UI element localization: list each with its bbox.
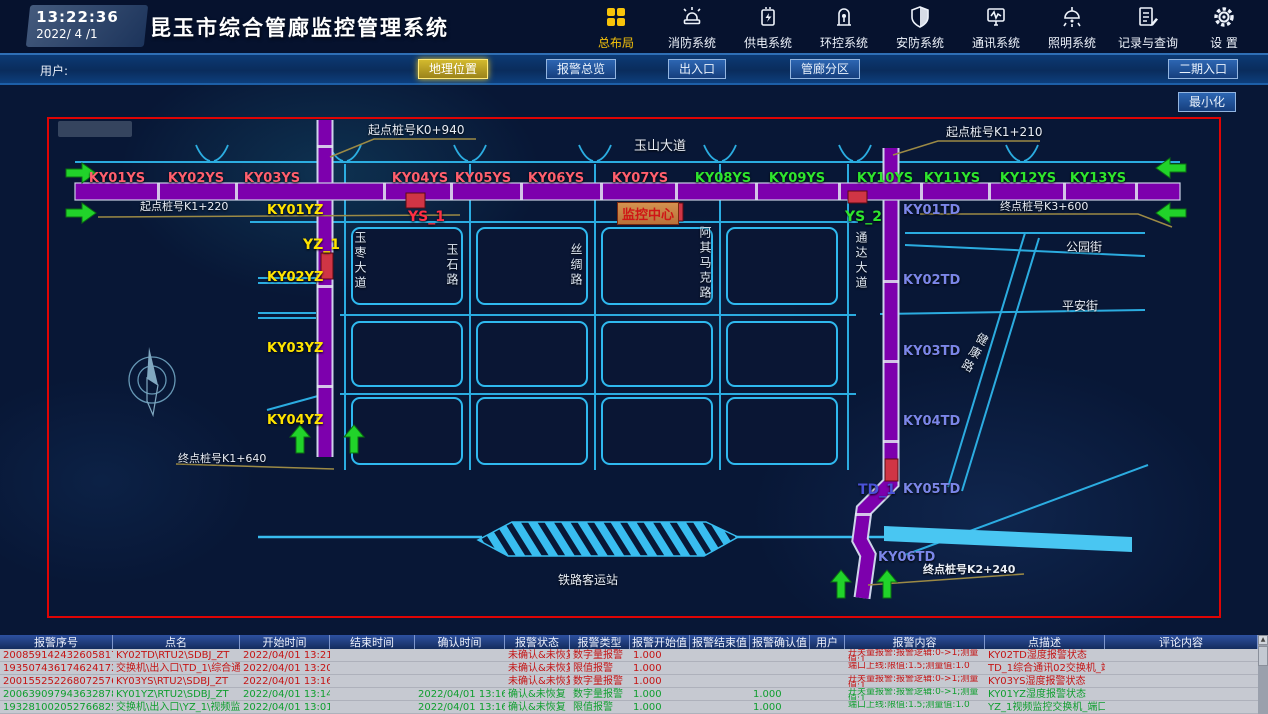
station-label-ky08ys[interactable]: KY08YS [695, 171, 751, 186]
nav-item-3[interactable]: 供电系统 [730, 3, 806, 51]
column-header-user: 用户 [810, 635, 845, 649]
cell-seq: 2006390979436328781 [0, 688, 113, 700]
cell-end_val [690, 649, 750, 661]
green-arrow-up [831, 570, 851, 598]
road-label-tongda: 通达大道 [853, 231, 870, 291]
cell-start_val: 1.000 [630, 649, 690, 661]
cell-content: 端口上线:限值:1.5;测量值:1.0 [845, 701, 985, 713]
cell-start: 2022/04/01 13:01:17 [240, 701, 330, 713]
station-label-ky03ys[interactable]: KY03YS [244, 171, 300, 186]
cell-user [810, 662, 845, 674]
station-label-ky06td[interactable]: KY06TD [878, 550, 935, 565]
cell-end_val [690, 688, 750, 700]
toolbar: 用户: 地理位置报警总览出入口管廊分区 二期入口 [0, 55, 1268, 85]
nav-item-1[interactable]: 总布局 [578, 3, 654, 51]
cell-end_val [690, 675, 750, 687]
cell-confirm_val: 1.000 [750, 701, 810, 713]
table-row[interactable]: 1935074361746241723交换机\出入口\TD_1\综合通讯02\X… [0, 662, 1268, 675]
lighting-lamp-icon [1040, 5, 1104, 33]
cell-confirm [415, 649, 505, 661]
station-label-ky02td[interactable]: KY02TD [903, 273, 960, 288]
nav-item-label: 设 置 [1192, 34, 1256, 51]
stake-label-end-k3-600: 终点桩号K3+600 [1000, 198, 1088, 214]
table-row[interactable]: 2008591424326058179KY02TD\RTU2\SDBJ_ZT20… [0, 649, 1268, 662]
cell-start: 2022/04/01 13:14:53 [240, 688, 330, 700]
time-text: 13:22:36 [36, 8, 138, 26]
cell-desc: YZ_1视频监控交换机_端口14 [985, 701, 1105, 713]
alarm-table-body: 2008591424326058179KY02TD\RTU2\SDBJ_ZT20… [0, 649, 1268, 714]
cell-confirm_val [750, 649, 810, 661]
cell-point: 交换机\出入口\YZ_1\视频监控\XK14 [113, 701, 240, 713]
security-shield-icon [888, 5, 952, 33]
cell-point: KY02TD\RTU2\SDBJ_ZT [113, 649, 240, 661]
station-label-ky01ys[interactable]: KY01YS [89, 171, 145, 186]
station-label-ky12ys[interactable]: KY12YS [1000, 171, 1056, 186]
main-nav: 总布局消防系统供电系统环控系统安防系统通讯系统照明系统记录与查询设 置 [578, 3, 1262, 53]
minimize-button[interactable]: 最小化 [1178, 92, 1236, 112]
nav-item-label: 照明系统 [1040, 34, 1104, 51]
nav-item-7[interactable]: 照明系统 [1034, 3, 1110, 51]
table-row[interactable]: 2001552522680725761KY03YS\RTU2\SDBJ_ZT20… [0, 675, 1268, 688]
green-arrow-up [290, 425, 310, 453]
compass-icon [129, 347, 175, 415]
green-arrow-right [66, 203, 96, 223]
station-label-ky02ys[interactable]: KY02YS [168, 171, 224, 186]
cell-confirm_val [750, 675, 810, 687]
stake-label-end-k2-240: 终点桩号K2+240 [923, 561, 1015, 577]
cell-content: 开关量报警:报警逻辑:0->1;测量值:1 [845, 675, 985, 687]
cell-desc: TD_1综合通讯02交换机_端口2 [985, 662, 1105, 674]
scroll-thumb[interactable] [1258, 646, 1268, 666]
scroll-up-icon[interactable]: ▲ [1258, 635, 1268, 645]
cell-comment [1105, 701, 1258, 713]
stake-label-start-k1-220: 起点桩号K1+220 [140, 198, 228, 214]
cell-end [330, 701, 415, 713]
nav-item-9[interactable]: 设 置 [1186, 3, 1262, 51]
alarm-point-label-td_1[interactable]: TD_1 [858, 482, 896, 498]
map-canvas [0, 85, 1268, 635]
cell-comment [1105, 675, 1258, 687]
nav-item-label: 安防系统 [888, 34, 952, 51]
alarm-box-ys2[interactable] [848, 191, 867, 203]
cell-start_val: 1.000 [630, 662, 690, 674]
station-label-ky13ys[interactable]: KY13YS [1070, 171, 1126, 186]
station-label-ky05td[interactable]: KY05TD [903, 482, 960, 497]
road-label-yuzao: 玉枣大道 [352, 231, 369, 291]
column-header-start: 开始时间 [240, 635, 330, 649]
cell-desc: KY03YS湿度报警状态 [985, 675, 1105, 687]
toolbar-button-3[interactable]: 出入口 [668, 59, 726, 79]
cell-content: 开关量报警:报警逻辑:0->1;测量值:1 [845, 649, 985, 661]
alarm-box-ys1[interactable] [406, 193, 425, 208]
cell-type: 数字量报警 [570, 688, 630, 700]
station-label-ky03td[interactable]: KY03TD [903, 344, 960, 359]
date-text: 2022/ 4 /1 [36, 27, 138, 41]
cell-start: 2022/04/01 13:21:55 [240, 649, 330, 661]
green-arrow-left [1156, 203, 1186, 223]
cell-user [810, 675, 845, 687]
cell-seq: 1932810020527668253 [0, 701, 113, 713]
station-label-ky05ys[interactable]: KY05YS [455, 171, 511, 186]
nav-item-8[interactable]: 记录与查询 [1110, 3, 1186, 51]
column-header-content: 报警内容 [845, 635, 985, 649]
table-row[interactable]: 2006390979436328781KY01YZ\RTU2\SDBJ_ZT20… [0, 688, 1268, 701]
railway [258, 522, 1132, 556]
cell-seq: 2008591424326058179 [0, 649, 113, 661]
cell-type: 数字量报警 [570, 675, 630, 687]
alarm-table-header: 报警序号点名开始时间结束时间确认时间报警状态报警类型报警开始值报警结束值报警确认… [0, 635, 1268, 649]
cell-confirm [415, 662, 505, 674]
alarm-point-label-ys_2[interactable]: YS_2 [845, 209, 882, 225]
cell-end_val [690, 662, 750, 674]
cell-end_val [690, 701, 750, 713]
cell-seq: 2001552522680725761 [0, 675, 113, 687]
railway-station-band [478, 522, 738, 556]
cell-end [330, 649, 415, 661]
fire-alarm-icon [660, 5, 724, 33]
station-label-ky11ys[interactable]: KY11YS [924, 171, 980, 186]
map-area: 最小化 [0, 85, 1268, 635]
cell-type: 限值报警 [570, 662, 630, 674]
cell-end [330, 662, 415, 674]
page-title: 昆玉市综合管廊监控管理系统 [150, 12, 449, 42]
cell-confirm_val [750, 662, 810, 674]
settings-gear-icon [1192, 5, 1256, 33]
column-header-state: 报警状态 [505, 635, 570, 649]
cell-confirm: 2022/04/01 13:16:05 [415, 701, 505, 713]
column-header-point: 点名 [113, 635, 240, 649]
road-label-gongyuan: 公园街 [1066, 238, 1102, 255]
table-scrollbar[interactable]: ▲ [1258, 635, 1268, 714]
cell-comment [1105, 662, 1258, 674]
phase2-entry-button[interactable]: 二期入口 [1168, 59, 1238, 79]
toolbar-button-2[interactable]: 报警总览 [546, 59, 616, 79]
nav-item-6[interactable]: 通讯系统 [958, 3, 1034, 51]
cell-start_val: 1.000 [630, 675, 690, 687]
cell-confirm_val: 1.000 [750, 688, 810, 700]
station-label-ky04td[interactable]: KY04TD [903, 414, 960, 429]
nav-item-2[interactable]: 消防系统 [654, 3, 730, 51]
user-label: 用户: [40, 62, 68, 79]
road-label-yushi: 玉石路 [444, 243, 461, 288]
column-header-end_val: 报警结束值 [690, 635, 750, 649]
cell-point: KY03YS\RTU2\SDBJ_ZT [113, 675, 240, 687]
station-label-ky03yz[interactable]: KY03YZ [267, 341, 323, 356]
column-header-end: 结束时间 [330, 635, 415, 649]
cell-point: KY01YZ\RTU2\SDBJ_ZT [113, 688, 240, 700]
cell-confirm: 2022/04/01 13:16:05 [415, 688, 505, 700]
cell-comment [1105, 688, 1258, 700]
nav-item-label: 通讯系统 [964, 34, 1028, 51]
app-header: 13:22:36 2022/ 4 /1 昆玉市综合管廊监控管理系统 总布局消防系… [0, 0, 1268, 55]
alarm-table: 报警序号点名开始时间结束时间确认时间报警状态报警类型报警开始值报警结束值报警确认… [0, 635, 1268, 714]
cell-state: 未确认&未恢复 [505, 675, 570, 687]
station-label-ky10ys[interactable]: KY10YS [857, 171, 913, 186]
column-header-comment: 评论内容 [1105, 635, 1258, 649]
station-label-ky02yz[interactable]: KY02YZ [267, 270, 323, 285]
nav-item-4[interactable]: 环控系统 [806, 3, 882, 51]
cell-content: 端口上线:限值:1.5;测量值:1.0 [845, 662, 985, 674]
cell-desc: KY02TD湿度报警状态 [985, 649, 1105, 661]
station-label-ky04ys[interactable]: KY04YS [392, 171, 448, 186]
road-label-pingan: 平安街 [1062, 297, 1098, 314]
alarm-point-label-ys_1[interactable]: YS_1 [408, 209, 445, 225]
power-supply-icon [736, 5, 800, 33]
column-header-seq: 报警序号 [0, 635, 113, 649]
nav-item-label: 总布局 [584, 34, 648, 51]
cell-type: 限值报警 [570, 701, 630, 713]
column-header-desc: 点描述 [985, 635, 1105, 649]
nav-item-label: 环控系统 [812, 34, 876, 51]
cell-user [810, 688, 845, 700]
stake-label-end-k1-640: 终点桩号K1+640 [178, 450, 266, 466]
cell-start: 2022/04/01 13:16:49 [240, 675, 330, 687]
cell-desc: KY01YZ湿度报警状态 [985, 688, 1105, 700]
road-label-yushan: 玉山大道 [634, 135, 686, 154]
station-label-ky09ys[interactable]: KY09YS [769, 171, 825, 186]
table-row[interactable]: 1932810020527668253交换机\出入口\YZ_1\视频监控\XK1… [0, 701, 1268, 714]
cell-comment [1105, 649, 1258, 661]
cell-user [810, 649, 845, 661]
cell-state: 未确认&未恢复 [505, 662, 570, 674]
cell-start_val: 1.000 [630, 688, 690, 700]
cell-end [330, 688, 415, 700]
cell-state: 确认&未恢复 [505, 701, 570, 713]
column-header-confirm_val: 报警确认值 [750, 635, 810, 649]
cell-start: 2022/04/01 13:20:59 [240, 662, 330, 674]
env-control-icon [812, 5, 876, 33]
nav-item-label: 记录与查询 [1116, 34, 1180, 51]
monitor-center-label[interactable]: 监控中心 [617, 202, 679, 225]
station-label-ky06ys[interactable]: KY06YS [528, 171, 584, 186]
toolbar-button-4[interactable]: 管廊分区 [790, 59, 860, 79]
cell-end [330, 675, 415, 687]
station-label-ky04yz[interactable]: KY04YZ [267, 413, 323, 428]
station-label-ky01yz[interactable]: KY01YZ [267, 203, 323, 218]
road-label-aqimake: 阿其马克路 [697, 226, 714, 301]
stake-label-start-k1-210: 起点桩号K1+210 [946, 123, 1042, 140]
cell-user [810, 701, 845, 713]
grid-icon [584, 5, 648, 33]
station-label-ky01td[interactable]: KY01TD [903, 203, 960, 218]
station-label-ky07ys[interactable]: KY07YS [612, 171, 668, 186]
cell-confirm [415, 675, 505, 687]
stake-label-start-k0-940: 起点桩号K0+940 [368, 121, 464, 138]
cell-seq: 1935074361746241723 [0, 662, 113, 674]
column-header-start_val: 报警开始值 [630, 635, 690, 649]
railway-station-label: 铁路客运站 [558, 571, 618, 588]
cell-state: 确认&未恢复 [505, 688, 570, 700]
clock: 13:22:36 2022/ 4 /1 [26, 5, 148, 47]
column-header-type: 报警类型 [570, 635, 630, 649]
alarm-box-td1[interactable] [885, 459, 898, 481]
comm-monitor-icon [964, 5, 1028, 33]
road-label-sichou: 丝绸路 [568, 243, 585, 288]
cell-type: 数字量报警 [570, 649, 630, 661]
toolbar-button-1[interactable]: 地理位置 [418, 59, 488, 79]
cell-start_val: 1.000 [630, 701, 690, 713]
cell-point: 交换机\出入口\TD_1\综合通讯02\X02 [113, 662, 240, 674]
faded-overlay-box [58, 121, 132, 137]
nav-item-label: 供电系统 [736, 34, 800, 51]
column-header-confirm: 确认时间 [415, 635, 505, 649]
cell-content: 开关量报警:报警逻辑:0->1;测量值:1 [845, 688, 985, 700]
cell-state: 未确认&未恢复 [505, 649, 570, 661]
alarm-point-label-yz_1[interactable]: YZ_1 [303, 237, 340, 253]
nav-item-5[interactable]: 安防系统 [882, 3, 958, 51]
nav-item-label: 消防系统 [660, 34, 724, 51]
records-icon [1116, 5, 1180, 33]
